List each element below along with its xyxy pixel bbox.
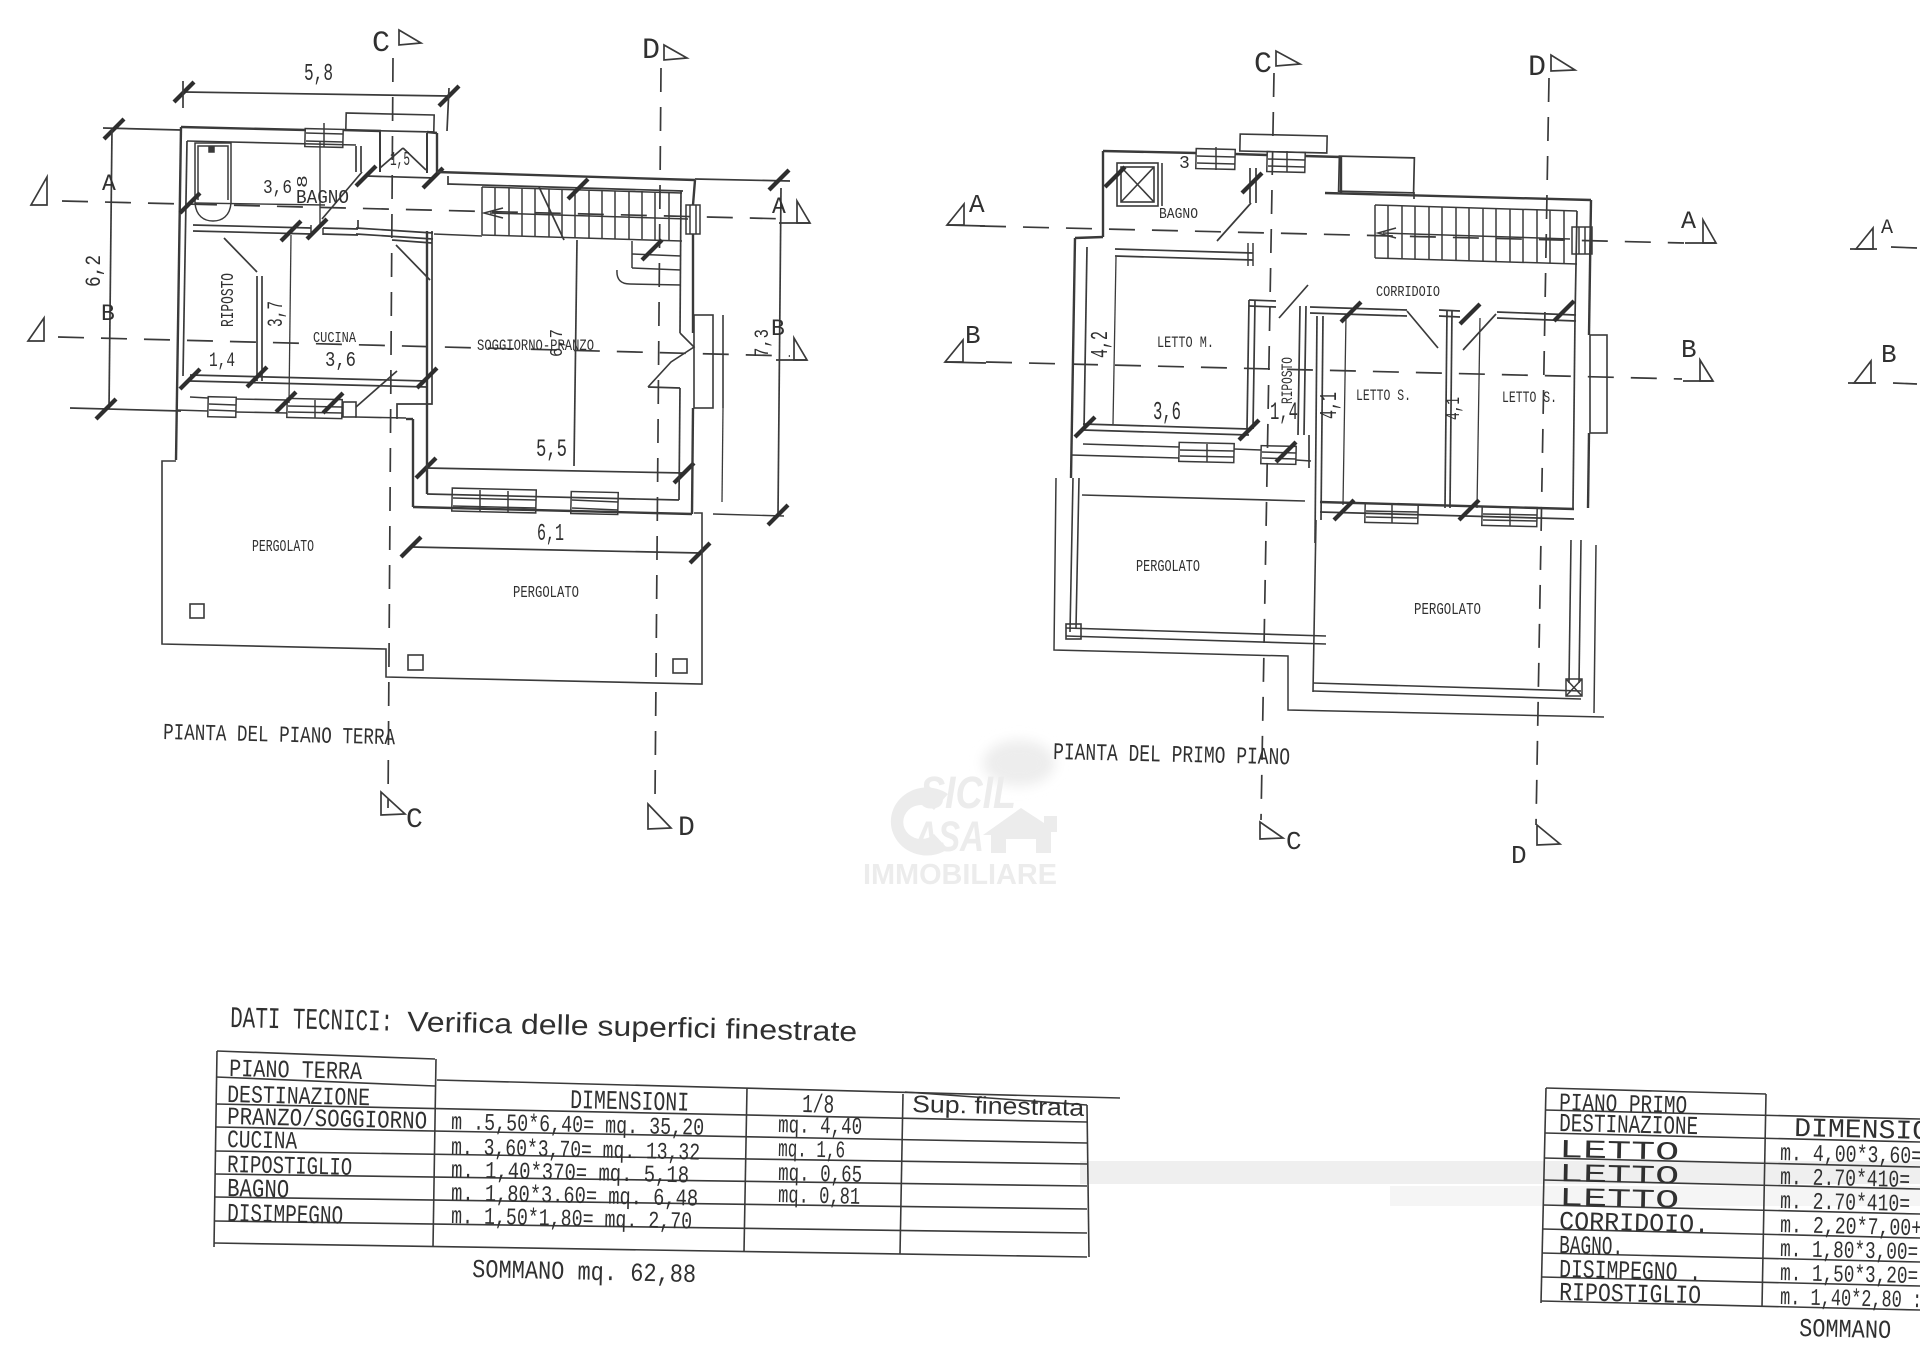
svg-text:6,1: 6,1 — [537, 521, 564, 548]
svg-text:m. 1,40*2,80 :: m. 1,40*2,80 : — [1780, 1285, 1920, 1315]
svg-text:A: A — [1681, 207, 1696, 236]
svg-text:D: D — [1528, 51, 1546, 85]
svg-text:3,6: 3,6 — [1153, 397, 1181, 427]
svg-text:CORRIDOIO: CORRIDOIO — [1376, 284, 1440, 301]
svg-text:A: A — [772, 194, 786, 220]
svg-text:6,7: 6,7 — [548, 329, 568, 357]
svg-text:RIPOSTIGLIO: RIPOSTIGLIO — [1559, 1278, 1702, 1311]
svg-text:D: D — [642, 34, 660, 68]
svg-text:1,4: 1,4 — [1270, 398, 1298, 427]
svg-text:5,8: 5,8 — [304, 61, 333, 88]
svg-text:CUCINA: CUCINA — [313, 330, 356, 347]
svg-text:D: D — [678, 813, 695, 844]
svg-text:6,2: 6,2 — [82, 255, 107, 287]
svg-text:IMMOBILIARE: IMMOBILIARE — [863, 859, 1057, 891]
svg-text:3,6: 3,6 — [263, 177, 292, 199]
svg-text:BAGNO: BAGNO — [296, 187, 349, 209]
svg-text:1,4: 1,4 — [209, 350, 235, 373]
svg-text:SOMMANO mq. 62,88: SOMMANO mq. 62,88 — [472, 1255, 697, 1290]
svg-text:3,6: 3,6 — [325, 350, 356, 373]
svg-text:C: C — [372, 27, 390, 61]
svg-text:RIPOSTO: RIPOSTO — [219, 273, 239, 327]
svg-text:SOMMANO: SOMMANO — [1799, 1314, 1892, 1346]
svg-text:PERGOLATO: PERGOLATO — [1136, 558, 1200, 577]
svg-text:PERGOLATO: PERGOLATO — [513, 584, 579, 603]
svg-text:B: B — [1881, 340, 1897, 370]
svg-text:PIANTA DEL PRIMO PIANO: PIANTA DEL PRIMO PIANO — [1053, 740, 1291, 772]
svg-text:A: A — [969, 190, 985, 220]
svg-text:B: B — [101, 301, 115, 327]
svg-text:RIPOSTO: RIPOSTO — [1279, 357, 1297, 404]
svg-text:3: 3 — [1179, 154, 1190, 174]
svg-text:C: C — [1286, 827, 1302, 857]
svg-text:4,1: 4,1 — [1443, 397, 1466, 420]
svg-text:PIANTA DEL PIANO TERRA: PIANTA DEL PIANO TERRA — [163, 720, 396, 751]
svg-text:DATI TECNICI:: DATI TECNICI: — [230, 1003, 394, 1041]
svg-text:5,5: 5,5 — [536, 435, 567, 464]
svg-text:ASA: ASA — [913, 813, 984, 861]
svg-text:C: C — [1254, 48, 1272, 82]
svg-text:B: B — [771, 316, 785, 342]
svg-text:D: D — [1511, 841, 1527, 871]
svg-text:1,5: 1,5 — [390, 149, 410, 171]
svg-text:A: A — [102, 171, 116, 197]
svg-text:Sup. finestrata: Sup. finestrata — [912, 1091, 1085, 1122]
svg-text:mq. 0,81: mq. 0,81 — [778, 1183, 861, 1212]
svg-text:B: B — [1681, 335, 1697, 365]
svg-text:LETTO S.: LETTO S. — [1356, 387, 1411, 405]
svg-text:LETTO S.: LETTO S. — [1502, 389, 1557, 407]
svg-text:BAGNO: BAGNO — [1159, 206, 1198, 223]
svg-text:m. 1,50*1,80= mq. 2,70: m. 1,50*1,80= mq. 2,70 — [451, 1204, 693, 1236]
svg-text:DISIMPEGNO: DISIMPEGNO — [227, 1199, 344, 1232]
svg-text:SOGGIORNO-PRANZO: SOGGIORNO-PRANZO — [477, 337, 594, 355]
svg-text:4,2: 4,2 — [1088, 331, 1115, 358]
svg-text:C: C — [406, 805, 423, 836]
svg-text:3,7: 3,7 — [264, 301, 289, 327]
svg-text:PERGOLATO: PERGOLATO — [1414, 601, 1481, 620]
svg-text:PERGOLATO: PERGOLATO — [252, 538, 314, 557]
svg-text:B: B — [965, 321, 981, 351]
svg-text:LETTO M.: LETTO M. — [1157, 334, 1214, 352]
svg-text:4,1: 4,1 — [1317, 392, 1344, 419]
svg-text:A: A — [1881, 217, 1893, 240]
